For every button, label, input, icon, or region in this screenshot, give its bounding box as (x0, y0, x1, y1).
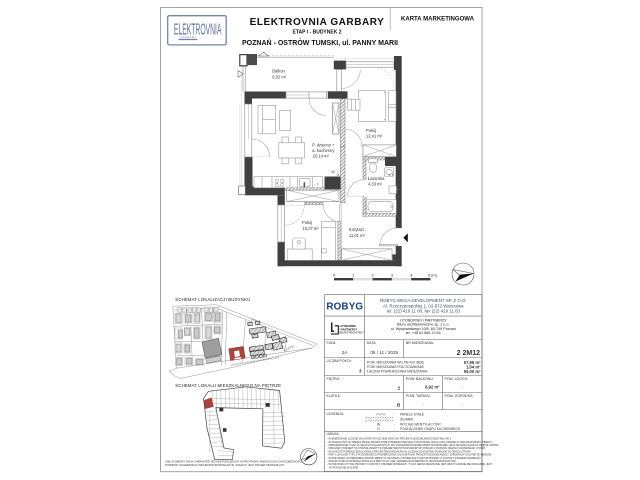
svg-text:UWAGA:: UWAGA: (327, 432, 340, 436)
svg-text:LICZBA POKOI:: LICZBA POKOI: (327, 359, 352, 363)
svg-text:2: 2 (372, 273, 374, 277)
svg-text:PODŁĄCZENIE OKAPU KUCHENNEGO: PODŁĄCZENIE OKAPU KUCHENNEGO (400, 427, 461, 431)
svg-text:Korytarz: Korytarz (349, 227, 364, 232)
svg-text:-: - (394, 413, 395, 417)
svg-text:POW. TARASU:: POW. TARASU: (406, 394, 431, 398)
svg-text:KARTA MARKETINGOWA: KARTA MARKETINGOWA (401, 17, 475, 23)
svg-text:Pokój: Pokój (302, 220, 312, 225)
svg-text:FAZA:: FAZA: (327, 341, 337, 345)
svg-text:WYPOSAŻONE W KLAPIE: WYPOSAŻONE W KLAPIE (329, 466, 358, 469)
svg-text:GARBARY: GARBARY (179, 36, 196, 40)
svg-text:3: 3 (359, 368, 362, 373)
svg-text:Balkon: Balkon (272, 69, 285, 74)
svg-text:LEGENDA:: LEGENDA: (327, 412, 345, 416)
svg-text:a. kuchenny: a. kuchenny (312, 148, 335, 153)
svg-text:10,07 m²: 10,07 m² (303, 226, 320, 231)
svg-text:-: - (394, 427, 395, 431)
svg-text:POZNAŃ - OSTRÓW TUMSKI, ul. PA: POZNAŃ - OSTRÓW TUMSKI, ul. PANNY MARII (242, 38, 398, 47)
svg-text:Łazienka: Łazienka (368, 176, 385, 181)
svg-text:4,33 m²: 4,33 m² (368, 182, 383, 187)
svg-text:0: 0 (333, 273, 335, 277)
svg-text:NR MIESZKANIA:: NR MIESZKANIA: (406, 341, 434, 345)
svg-text:4: 4 (410, 273, 412, 277)
svg-text:3: 3 (391, 273, 393, 277)
svg-text:ETAP I - BUDYNEK 2: ETAP I - BUDYNEK 2 (293, 30, 342, 36)
svg-text:11,01 m²: 11,01 m² (349, 233, 365, 238)
svg-text:tel. (22) 419 11 00, fax (22): tel. (22) 419 11 00, fax (22) 419 11 03 (387, 309, 461, 314)
svg-text:1: 1 (352, 273, 354, 277)
svg-text:59,00 m²: 59,00 m² (464, 369, 481, 374)
svg-text:PIĘTRO:: PIĘTRO: (327, 377, 341, 381)
svg-text:6,02 m²: 6,02 m² (272, 74, 287, 79)
svg-text:2 2M12: 2 2M12 (457, 350, 480, 357)
svg-text:POW. OGRÓDKA:: POW. OGRÓDKA: (445, 393, 474, 398)
svg-text:ŚCIANKI: ŚCIANKI (400, 417, 413, 422)
svg-text:DATA:: DATA: (367, 341, 377, 345)
svg-text:12,41 m²: 12,41 m² (366, 134, 383, 139)
svg-text:05 / 11 / 2025: 05 / 11 / 2025 (370, 350, 398, 355)
svg-text:Pokój: Pokój (366, 128, 376, 133)
svg-text:KLATKA:: KLATKA: (327, 394, 341, 398)
svg-text:PANELE STAŁE: PANELE STAŁE (400, 413, 425, 417)
svg-text:tel. +48 61 866 13 84: tel. +48 61 866 13 84 (406, 331, 441, 335)
svg-text:POW. MIESZKANIA WG PN-ISO 983: POW. MIESZKANIA WG PN-ISO 9836: (367, 361, 424, 365)
svg-text:20,14 m²: 20,14 m² (313, 153, 330, 158)
svg-text:5 (m): 5 (m) (428, 273, 438, 277)
svg-text:SCHEMAT LOKALIZACJI BUDYNKU: SCHEMAT LOKALIZACJI BUDYNKU (175, 297, 250, 302)
svg-text:WYCIĄG WENTYLACYJNY: WYCIĄG WENTYLACYJNY (400, 422, 442, 426)
svg-text:2: 2 (398, 385, 401, 390)
svg-text:6,92 m²: 6,92 m² (425, 384, 440, 389)
svg-text:BIURO ARCHITEKT.: BIURO ARCHITEKT. (340, 331, 365, 335)
svg-text:SCHEMAT LOKALU MIESZKALNEGO NA: SCHEMAT LOKALU MIESZKALNEGO NA PIĘTRZE (175, 383, 281, 388)
svg-text:ć: ć (317, 182, 319, 186)
svg-text:O: O (377, 427, 380, 431)
svg-text:ŁĄCZNA POWIERZCHNIA MIESZKANIA: ŁĄCZNA POWIERZCHNIA MIESZKANIA: (367, 370, 428, 374)
svg-text:ROBYG WEGA DEVELOPMENT SP. Z O: ROBYG WEGA DEVELOPMENT SP. Z O.O. (380, 298, 467, 303)
svg-text:POW. LOGGII:: POW. LOGGII: (445, 377, 468, 381)
svg-text:POW. BALKONU:: POW. BALKONU: (406, 377, 434, 381)
svg-text:2A: 2A (342, 350, 349, 355)
svg-text:O: O (337, 173, 340, 177)
svg-text:-: - (394, 422, 395, 426)
svg-text:ROBYG: ROBYG (326, 302, 363, 313)
svg-text:POW. MIESZKANIA POD ŚCIANKAMI:: POW. MIESZKANIA POD ŚCIANKAMI: (367, 364, 424, 369)
svg-text:P. dzienny +: P. dzienny + (312, 143, 335, 148)
svg-text:ELEKTROVNIA GARBARY: ELEKTROVNIA GARBARY (250, 17, 385, 28)
svg-text:a, k: a, k (389, 172, 394, 176)
